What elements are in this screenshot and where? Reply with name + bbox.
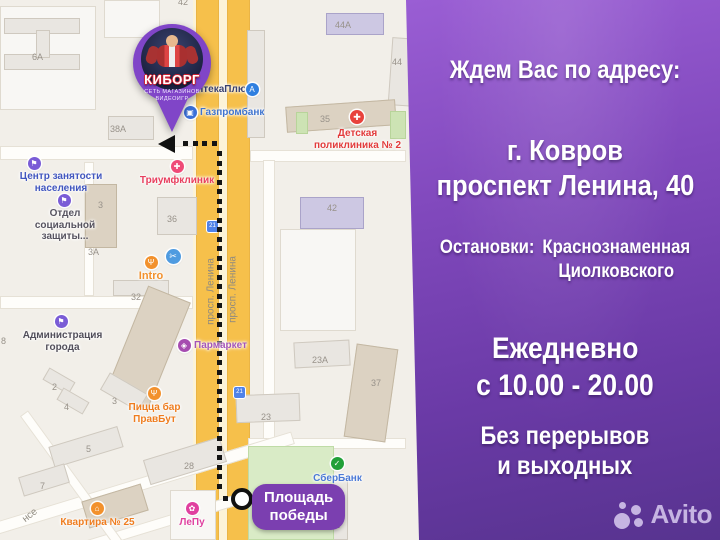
schedule-block: Ежедневно с 10.00 - 20.00 bbox=[418, 330, 712, 404]
route-dot bbox=[217, 332, 222, 337]
children-polyclinic-2-icon: ✚ bbox=[350, 110, 364, 124]
poi-label-line: социальной bbox=[20, 220, 110, 232]
route-dot bbox=[217, 189, 222, 194]
store-location-pin: КИБОРГ СЕТЬ МАГАЗИНОВ ВИДЕОИГР bbox=[133, 24, 211, 142]
stop-name-1: Краснознаменная bbox=[542, 236, 690, 260]
route-dot bbox=[217, 275, 222, 280]
map-building bbox=[170, 490, 216, 540]
victory-square-badge: Площадь победы bbox=[252, 484, 345, 530]
stop-name-2: Циолковского bbox=[542, 260, 690, 284]
address-street: проспект Ленина, 40 bbox=[436, 169, 694, 204]
route-dot bbox=[217, 208, 222, 213]
avito-wordmark: Avito bbox=[650, 499, 712, 530]
lepu-dessert-label: ЛеПу bbox=[167, 517, 217, 529]
route-endpoint-icon bbox=[231, 488, 253, 510]
avito-mark-icon bbox=[614, 500, 646, 530]
kvartira-25-hotel-icon: ⌂ bbox=[91, 502, 104, 515]
kvartira-25-hotel-label: Квартира № 25 bbox=[45, 517, 150, 529]
map-building bbox=[300, 197, 364, 229]
building-label: 42 bbox=[178, 0, 188, 7]
route-dot bbox=[217, 398, 222, 403]
employment-center-label: Центр занятостинаселения bbox=[5, 171, 117, 194]
children-polyclinic-2-label: Детскаяполиклиника № 2 bbox=[305, 128, 410, 151]
schedule-note-1: Без перерывов bbox=[481, 421, 650, 451]
route-dot bbox=[217, 218, 222, 223]
route-dot bbox=[217, 237, 222, 242]
promo-image: 6А4238А44А443533А364232824323А2337528721… bbox=[0, 0, 720, 540]
lepu-dessert-icon: ✿ bbox=[186, 502, 199, 515]
transit-badge-icon: 21 bbox=[233, 386, 246, 399]
schedule-note-block: Без перерывов и выходных bbox=[418, 421, 712, 481]
sberbank-icon: ✓ bbox=[331, 457, 344, 470]
building-label: 44 bbox=[392, 57, 402, 67]
route-dot bbox=[217, 360, 222, 365]
map-building bbox=[280, 229, 356, 331]
route-dot bbox=[217, 265, 222, 270]
stops-block: Остановки: Краснознаменная Циолковского bbox=[418, 236, 712, 284]
route-dot bbox=[217, 455, 222, 460]
building-label: 5 bbox=[86, 444, 91, 454]
building-label: 42 bbox=[327, 203, 337, 213]
route-dot bbox=[217, 161, 222, 166]
building-label: 2 bbox=[52, 382, 57, 392]
social-protection-dept-label: Отделсоциальнойзащиты... bbox=[20, 208, 110, 243]
apteka-plus-pharmacy-icon: А bbox=[246, 83, 259, 96]
poi-label-line: Детская bbox=[305, 128, 410, 140]
route-dot bbox=[217, 408, 222, 413]
pin-store-name: КИБОРГ bbox=[133, 72, 211, 87]
street-label: просп. Ленина bbox=[228, 245, 239, 335]
route-dot bbox=[217, 417, 222, 422]
poi-label-line: Триумфклиник bbox=[132, 175, 222, 187]
pin-body: КИБОРГ СЕТЬ МАГАЗИНОВ ВИДЕОИГР bbox=[133, 24, 211, 102]
building-label: 37 bbox=[371, 378, 381, 388]
destination-line-2: победы bbox=[264, 507, 333, 525]
building-label: 3А bbox=[88, 247, 99, 257]
route-dot bbox=[217, 474, 222, 479]
route-dot bbox=[217, 322, 222, 327]
city-administration-icon: ⚑ bbox=[55, 315, 68, 328]
poi-label-line: Отдел bbox=[20, 208, 110, 220]
map-building bbox=[344, 344, 399, 443]
building-label: 4 bbox=[64, 402, 69, 412]
route-dot bbox=[217, 465, 222, 470]
map-building bbox=[57, 387, 90, 414]
route-dot bbox=[217, 379, 222, 384]
poi-label-line: Администрация bbox=[15, 330, 110, 342]
route-dot bbox=[217, 294, 222, 299]
route-dot bbox=[217, 389, 222, 394]
route-dot bbox=[217, 427, 222, 432]
poi-label-line: Пицца бар bbox=[112, 402, 197, 414]
destination-line-1: Площадь bbox=[264, 489, 333, 507]
route-dot bbox=[217, 227, 222, 232]
route-dot bbox=[223, 496, 228, 501]
intro-cafe-icon: Ψ bbox=[145, 256, 158, 269]
building-label: 23А bbox=[312, 355, 328, 365]
poi-label-line: СберБанк bbox=[295, 473, 380, 485]
building-label: 38А bbox=[110, 124, 126, 134]
building-label: 32 bbox=[131, 292, 141, 302]
triumf-clinic-icon: ✚ bbox=[171, 160, 184, 173]
intro-cafe-label: Intro bbox=[126, 270, 176, 283]
poi-label-line: населения bbox=[5, 183, 117, 195]
pizza-bar-pravbut-label: Пицца барПравБут bbox=[112, 402, 197, 425]
poi-label-line: Пармаркет bbox=[194, 340, 264, 352]
building-label: 35 bbox=[320, 114, 330, 124]
route-dot bbox=[217, 446, 222, 451]
triumf-clinic-label: Триумфклиник bbox=[132, 175, 222, 187]
greeting: Ждем Вас по адресу: bbox=[418, 56, 712, 85]
building-label: 23 bbox=[261, 412, 271, 422]
route-dot bbox=[217, 313, 222, 318]
route-dot bbox=[217, 370, 222, 375]
address-block: г. Ковров проспект Ленина, 40 bbox=[418, 134, 712, 204]
schedule-note-2: и выходных bbox=[497, 451, 632, 481]
map-building bbox=[43, 367, 76, 394]
route-dot bbox=[217, 256, 222, 261]
route-dot bbox=[217, 151, 222, 156]
building-label: 8 bbox=[1, 336, 6, 346]
route-dot bbox=[217, 199, 222, 204]
employment-center-icon: ⚑ bbox=[28, 157, 41, 170]
building-label: 36 bbox=[167, 214, 177, 224]
schedule-hours: с 10.00 - 20.00 bbox=[476, 367, 654, 404]
greeting-text: Ждем Вас по адресу: bbox=[450, 56, 681, 85]
building-label: 44А bbox=[335, 20, 351, 30]
building-label: 28 bbox=[184, 461, 194, 471]
poi-label-line: ПравБут bbox=[112, 414, 197, 426]
poi-label-line: поликлиника № 2 bbox=[305, 140, 410, 152]
building-label: 7 bbox=[40, 481, 45, 491]
building-label: 6А bbox=[32, 52, 43, 62]
route-dot bbox=[217, 246, 222, 251]
route-dot bbox=[217, 436, 222, 441]
poi-label-line: ЛеПу bbox=[167, 517, 217, 529]
poi-label-line: Центр занятости bbox=[5, 171, 117, 183]
pizza-bar-pravbut-icon: Ψ bbox=[148, 387, 161, 400]
route-dot bbox=[217, 284, 222, 289]
poi-label-line: Intro bbox=[126, 270, 176, 283]
sberbank-label: СберБанк bbox=[295, 473, 380, 485]
street-label: просп. Ленина bbox=[206, 247, 217, 337]
info-panel: Ждем Вас по адресу: г. Ковров проспект Л… bbox=[402, 0, 720, 540]
poi-label-line: защиты... bbox=[20, 231, 110, 243]
route-dot bbox=[217, 484, 222, 489]
stops-label: Остановки: bbox=[440, 236, 535, 284]
city-administration-label: Администрациягорода bbox=[15, 330, 110, 353]
parmarket-shop-icon: ◈ bbox=[178, 339, 191, 352]
parmarket-shop-label: Пармаркет bbox=[194, 340, 264, 352]
barbershop-icon: ✂ bbox=[166, 249, 181, 264]
route-dot bbox=[217, 303, 222, 308]
pin-store-tagline-2: ВИДЕОИГР bbox=[133, 96, 211, 102]
schedule-title: Ежедневно bbox=[492, 330, 638, 367]
pin-store-tagline-1: СЕТЬ МАГАЗИНОВ bbox=[133, 89, 211, 95]
poi-label-line: города bbox=[15, 342, 110, 354]
poi-label-line: Квартира № 25 bbox=[45, 517, 150, 529]
avito-logo: Avito bbox=[614, 499, 712, 530]
social-protection-dept-icon: ⚑ bbox=[58, 194, 71, 207]
address-city: г. Ковров bbox=[507, 134, 623, 169]
route-dot bbox=[212, 141, 217, 146]
